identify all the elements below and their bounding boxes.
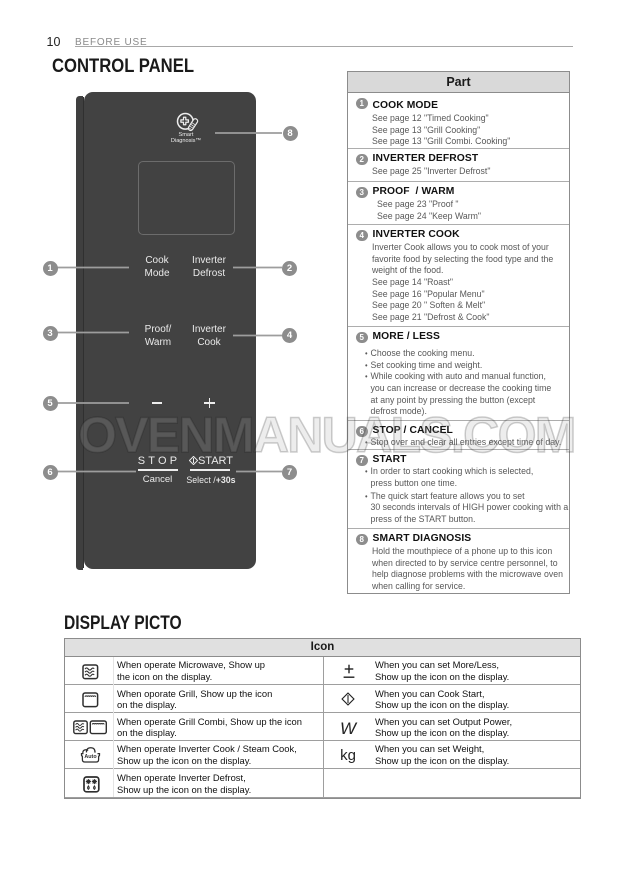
svg-text:Auto: Auto	[84, 754, 97, 760]
